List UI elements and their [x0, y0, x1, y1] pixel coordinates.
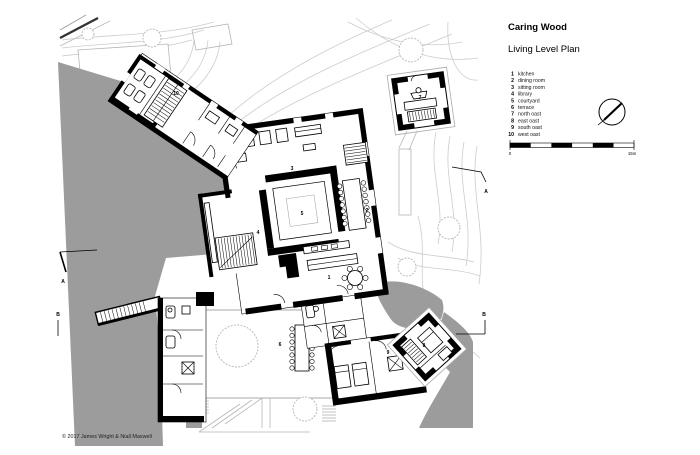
room-label-6: 6 — [279, 342, 282, 348]
section-marker-a-left: A — [61, 279, 65, 285]
legend-item: 7 north oast — [511, 112, 542, 118]
svg-text:south oast: south oast — [518, 125, 542, 131]
svg-text:terrace: terrace — [518, 105, 534, 111]
terrace-tree-icon — [216, 325, 258, 367]
scale-end-label: 15m — [628, 151, 637, 156]
svg-text:8: 8 — [511, 118, 514, 124]
scale-start-label: 0 — [509, 151, 512, 156]
legend-item: 8 east oast — [511, 118, 540, 124]
legend-item: 1 kitchen — [511, 72, 534, 78]
section-marker-b-left: B — [56, 312, 60, 318]
svg-text:4: 4 — [511, 92, 514, 98]
svg-text:7: 7 — [511, 112, 514, 118]
svg-text:1: 1 — [511, 72, 514, 78]
room-label-8: 8 — [423, 343, 426, 349]
svg-text:north oast: north oast — [518, 112, 542, 118]
room-label-10: 10 — [173, 91, 179, 97]
svg-text:3: 3 — [511, 85, 514, 91]
room-label-7: 7 — [419, 95, 422, 101]
svg-text:courtyard: courtyard — [518, 98, 540, 104]
room-label-9: 9 — [387, 350, 390, 356]
svg-text:dining room: dining room — [518, 78, 545, 84]
scale-bar: 0 15m — [509, 140, 637, 156]
north-oast — [387, 67, 455, 135]
legend-item: 10 west oast — [508, 132, 540, 138]
svg-text:5: 5 — [511, 98, 514, 104]
svg-text:kitchen: kitchen — [518, 72, 535, 78]
svg-text:library: library — [518, 92, 533, 98]
section-marker-b-right: B — [482, 312, 486, 318]
drawing-sheet: 1 2 3 4 5 6 7 8 9 10 A B A B Caring Wood… — [0, 0, 700, 455]
copyright-text: © 2017 James Wright & Niall Maxwell — [62, 433, 152, 440]
room-label-5: 5 — [301, 211, 304, 217]
svg-text:2: 2 — [511, 78, 514, 84]
section-marker-a-right: A — [484, 189, 488, 195]
drawing-subtitle: Living Level Plan — [508, 44, 580, 55]
floor-plan-svg: 1 2 3 4 5 6 7 8 9 10 A B A B Caring Wood… — [0, 0, 700, 455]
svg-text:10: 10 — [508, 132, 514, 138]
legend-item: 6 terrace — [511, 105, 534, 111]
legend-item: 2 dining room — [511, 78, 545, 84]
legend-item: 3 sitting room — [511, 85, 545, 91]
room-label-3: 3 — [291, 166, 294, 172]
svg-text:east oast: east oast — [518, 118, 540, 124]
svg-text:sitting room: sitting room — [518, 85, 545, 91]
svg-text:9: 9 — [511, 125, 514, 131]
room-label-1: 1 — [328, 275, 331, 281]
title-block: Caring Wood Living Level Plan — [508, 22, 580, 55]
svg-text:west oast: west oast — [518, 132, 540, 138]
stair-north — [343, 142, 368, 165]
room-label-2: 2 — [366, 208, 369, 214]
room-label-4: 4 — [257, 230, 260, 236]
svg-text:6: 6 — [511, 105, 514, 111]
legend: 1 kitchen 2 dining room 3 sitting room 4… — [508, 72, 545, 138]
north-arrow-icon — [598, 99, 625, 125]
legend-item: 9 south oast — [511, 125, 542, 131]
southwest-wing — [158, 292, 214, 422]
drawing-title: Caring Wood — [508, 22, 567, 33]
legend-item: 5 courtyard — [511, 98, 540, 104]
legend-item: 4 library — [511, 92, 532, 98]
